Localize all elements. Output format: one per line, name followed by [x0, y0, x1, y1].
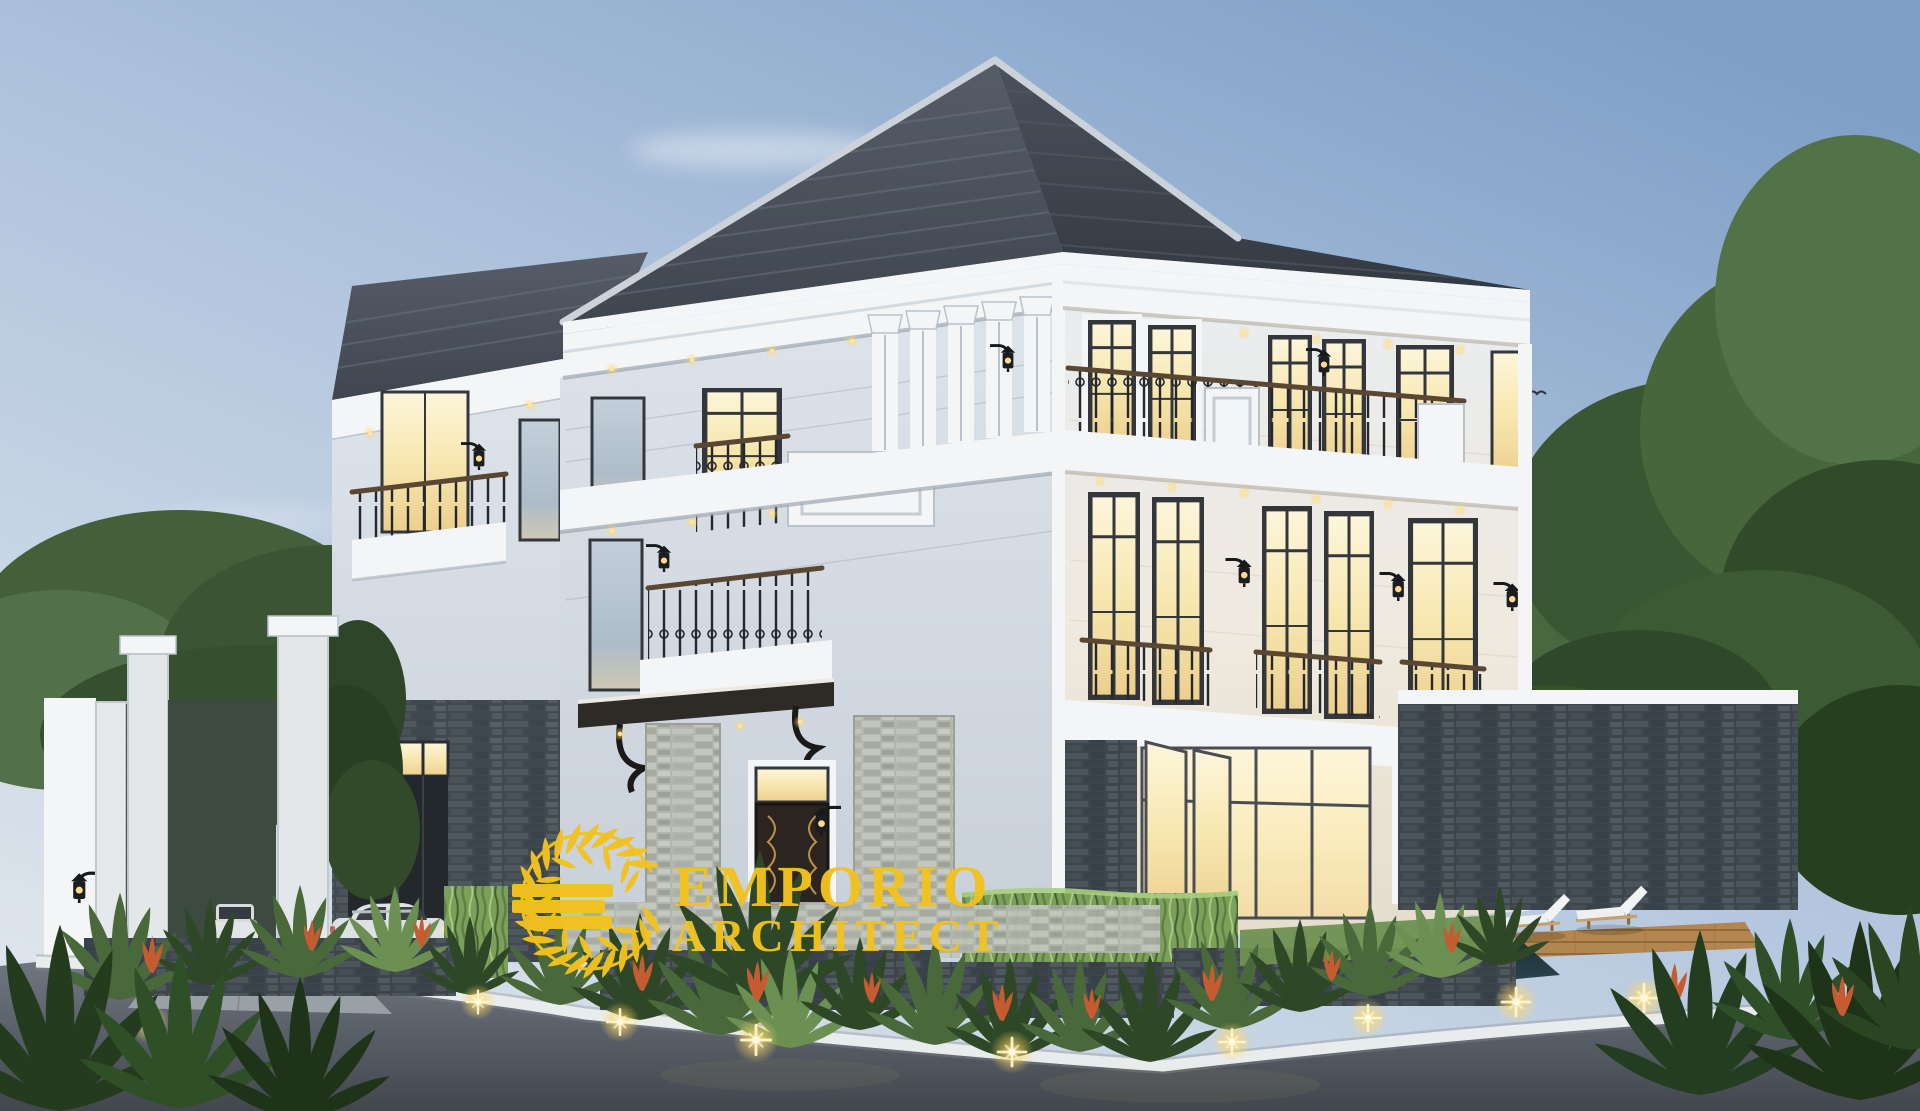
- gate-pillar-left: [120, 636, 176, 954]
- brand-line2: ARCHITECT: [672, 910, 1005, 961]
- e-monogram-icon: [512, 884, 613, 929]
- stone-wall-coping: [1398, 690, 1798, 704]
- scene-svg: EMPORIO ARCHITECT: [0, 0, 1920, 1111]
- stone-privacy-wall: [1398, 704, 1798, 910]
- wing-window-narrow: [520, 420, 560, 540]
- wing-balcony: [352, 474, 506, 580]
- pilaster-cluster: [868, 297, 1054, 453]
- fence-post: [44, 698, 96, 956]
- architectural-render-canvas: EMPORIO ARCHITECT: [0, 0, 1920, 1111]
- window-2f-left: [590, 540, 642, 690]
